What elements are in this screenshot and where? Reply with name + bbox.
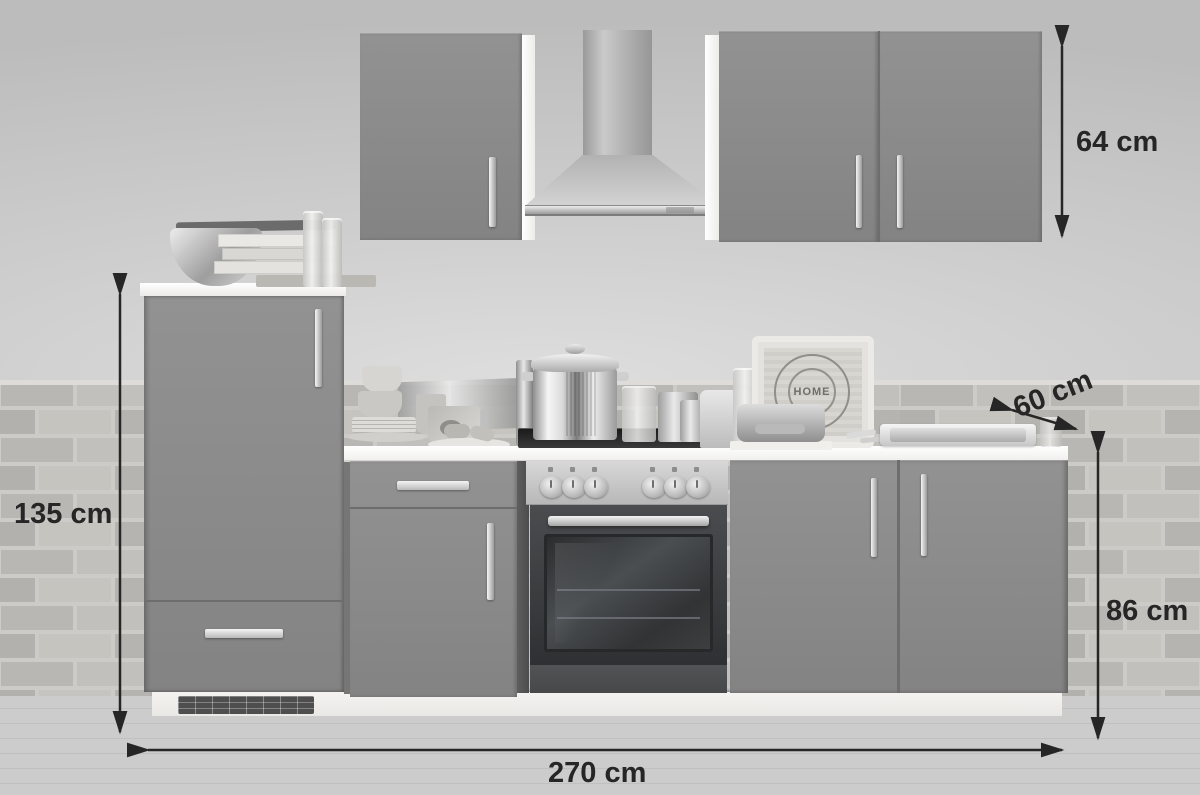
dimension-label-total-width: 270 cm <box>548 757 646 790</box>
dimension-label-base-height: 86 cm <box>1106 595 1188 628</box>
dimension-label-wall-cabinet-height: 64 cm <box>1076 126 1158 159</box>
kitchen-product-image: HOME 135 cm 64 cm 60 cm 86 cm 270 cm <box>0 0 1200 795</box>
dimension-label-tall-unit-height: 135 cm <box>14 498 112 531</box>
